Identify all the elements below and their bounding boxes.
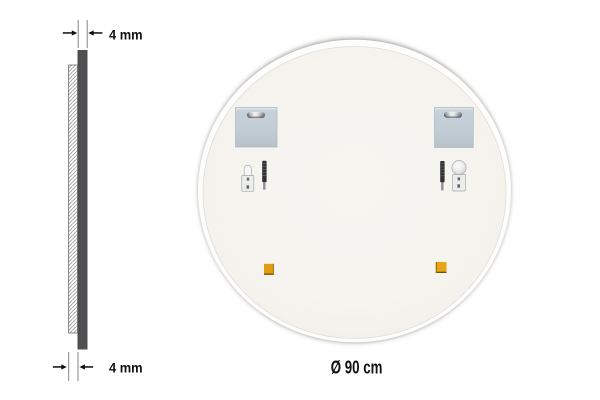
svg-text:4 mm: 4 mm <box>109 360 143 376</box>
svg-text:4 mm: 4 mm <box>109 27 143 43</box>
svg-text:Ø 90 cm: Ø 90 cm <box>331 359 383 378</box>
